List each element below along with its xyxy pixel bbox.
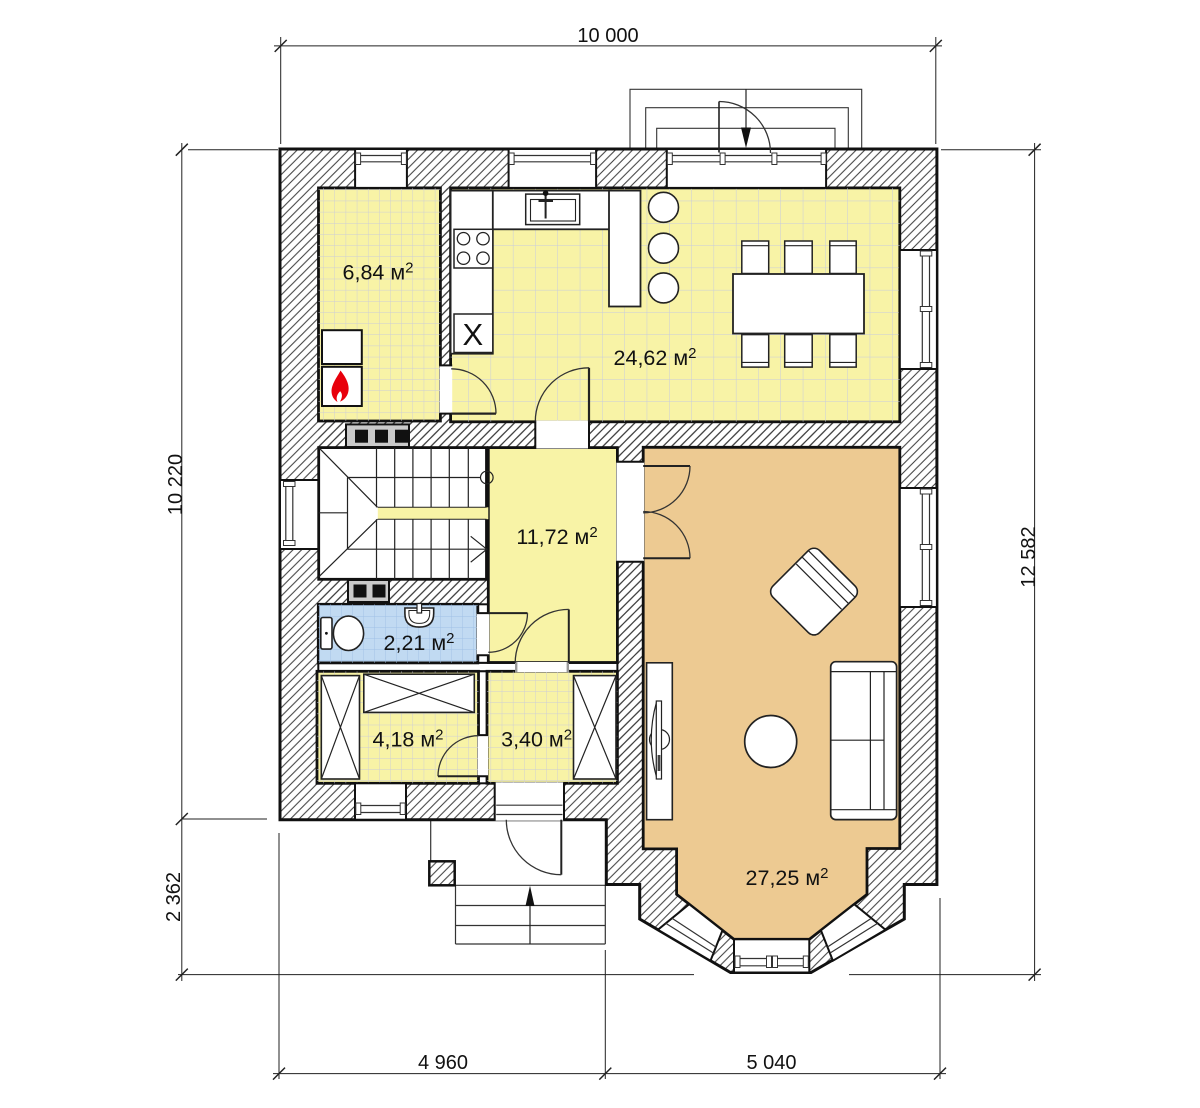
svg-text:27,25 м2: 27,25 м2	[746, 865, 829, 890]
svg-text:3,40 м2: 3,40 м2	[501, 727, 572, 752]
svg-text:4 960: 4 960	[418, 1052, 468, 1074]
svg-text:5 040: 5 040	[746, 1052, 796, 1074]
svg-text:2 362: 2 362	[163, 872, 185, 922]
svg-text:12 582: 12 582	[1018, 526, 1040, 587]
svg-text:11,72 м2: 11,72 м2	[516, 524, 597, 549]
svg-text:10 000: 10 000	[577, 25, 638, 47]
svg-text:4,18 м2: 4,18 м2	[373, 727, 444, 752]
svg-text:2,21 м2: 2,21 м2	[384, 630, 455, 655]
svg-text:24,62 м2: 24,62 м2	[614, 345, 697, 370]
svg-text:X: X	[462, 317, 483, 352]
svg-text:10 220: 10 220	[165, 454, 187, 515]
svg-text:6,84 м2: 6,84 м2	[343, 260, 414, 285]
